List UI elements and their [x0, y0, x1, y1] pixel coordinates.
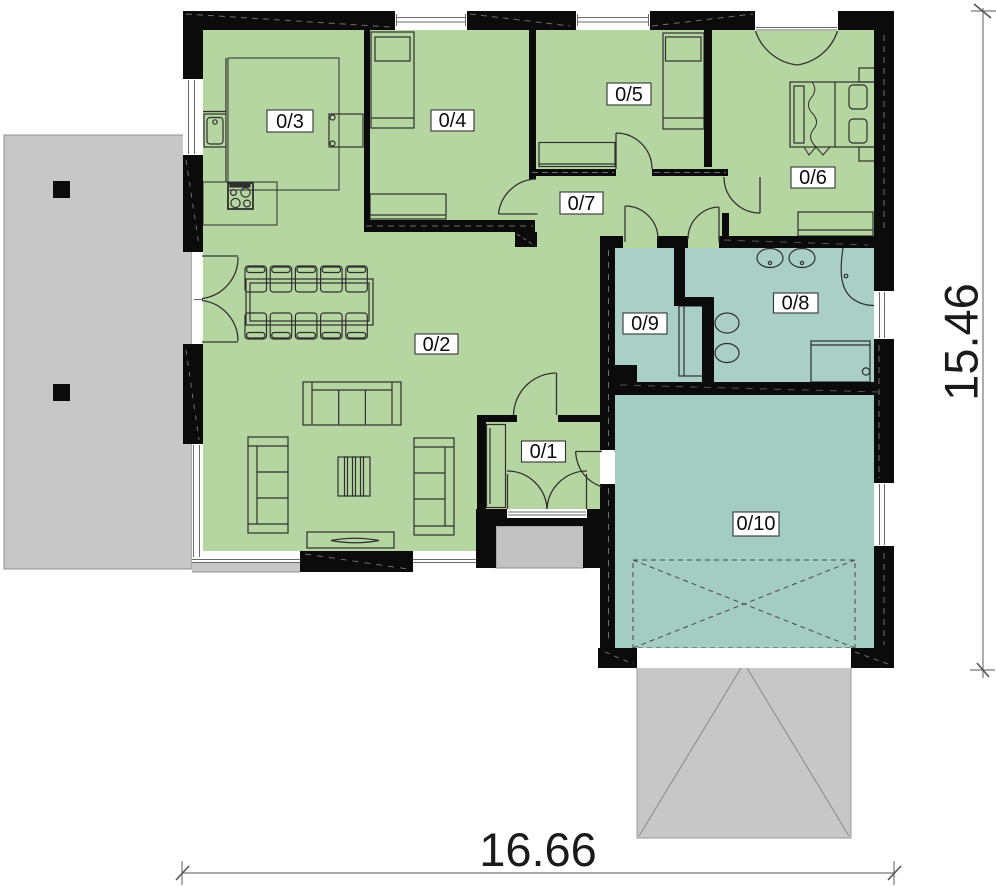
svg-text:0/9: 0/9 [631, 313, 659, 335]
svg-text:0/5: 0/5 [615, 84, 643, 106]
svg-text:0/2: 0/2 [423, 334, 451, 356]
svg-text:0/1: 0/1 [530, 441, 558, 463]
svg-text:0/7: 0/7 [568, 193, 596, 215]
svg-text:0/6: 0/6 [799, 167, 827, 189]
svg-text:0/8: 0/8 [782, 293, 810, 315]
svg-text:0/10: 0/10 [737, 513, 776, 535]
svg-text:0/3: 0/3 [276, 111, 304, 133]
svg-text:15.46: 15.46 [935, 283, 988, 401]
svg-text:16.66: 16.66 [479, 823, 597, 876]
svg-text:0/4: 0/4 [439, 110, 467, 132]
